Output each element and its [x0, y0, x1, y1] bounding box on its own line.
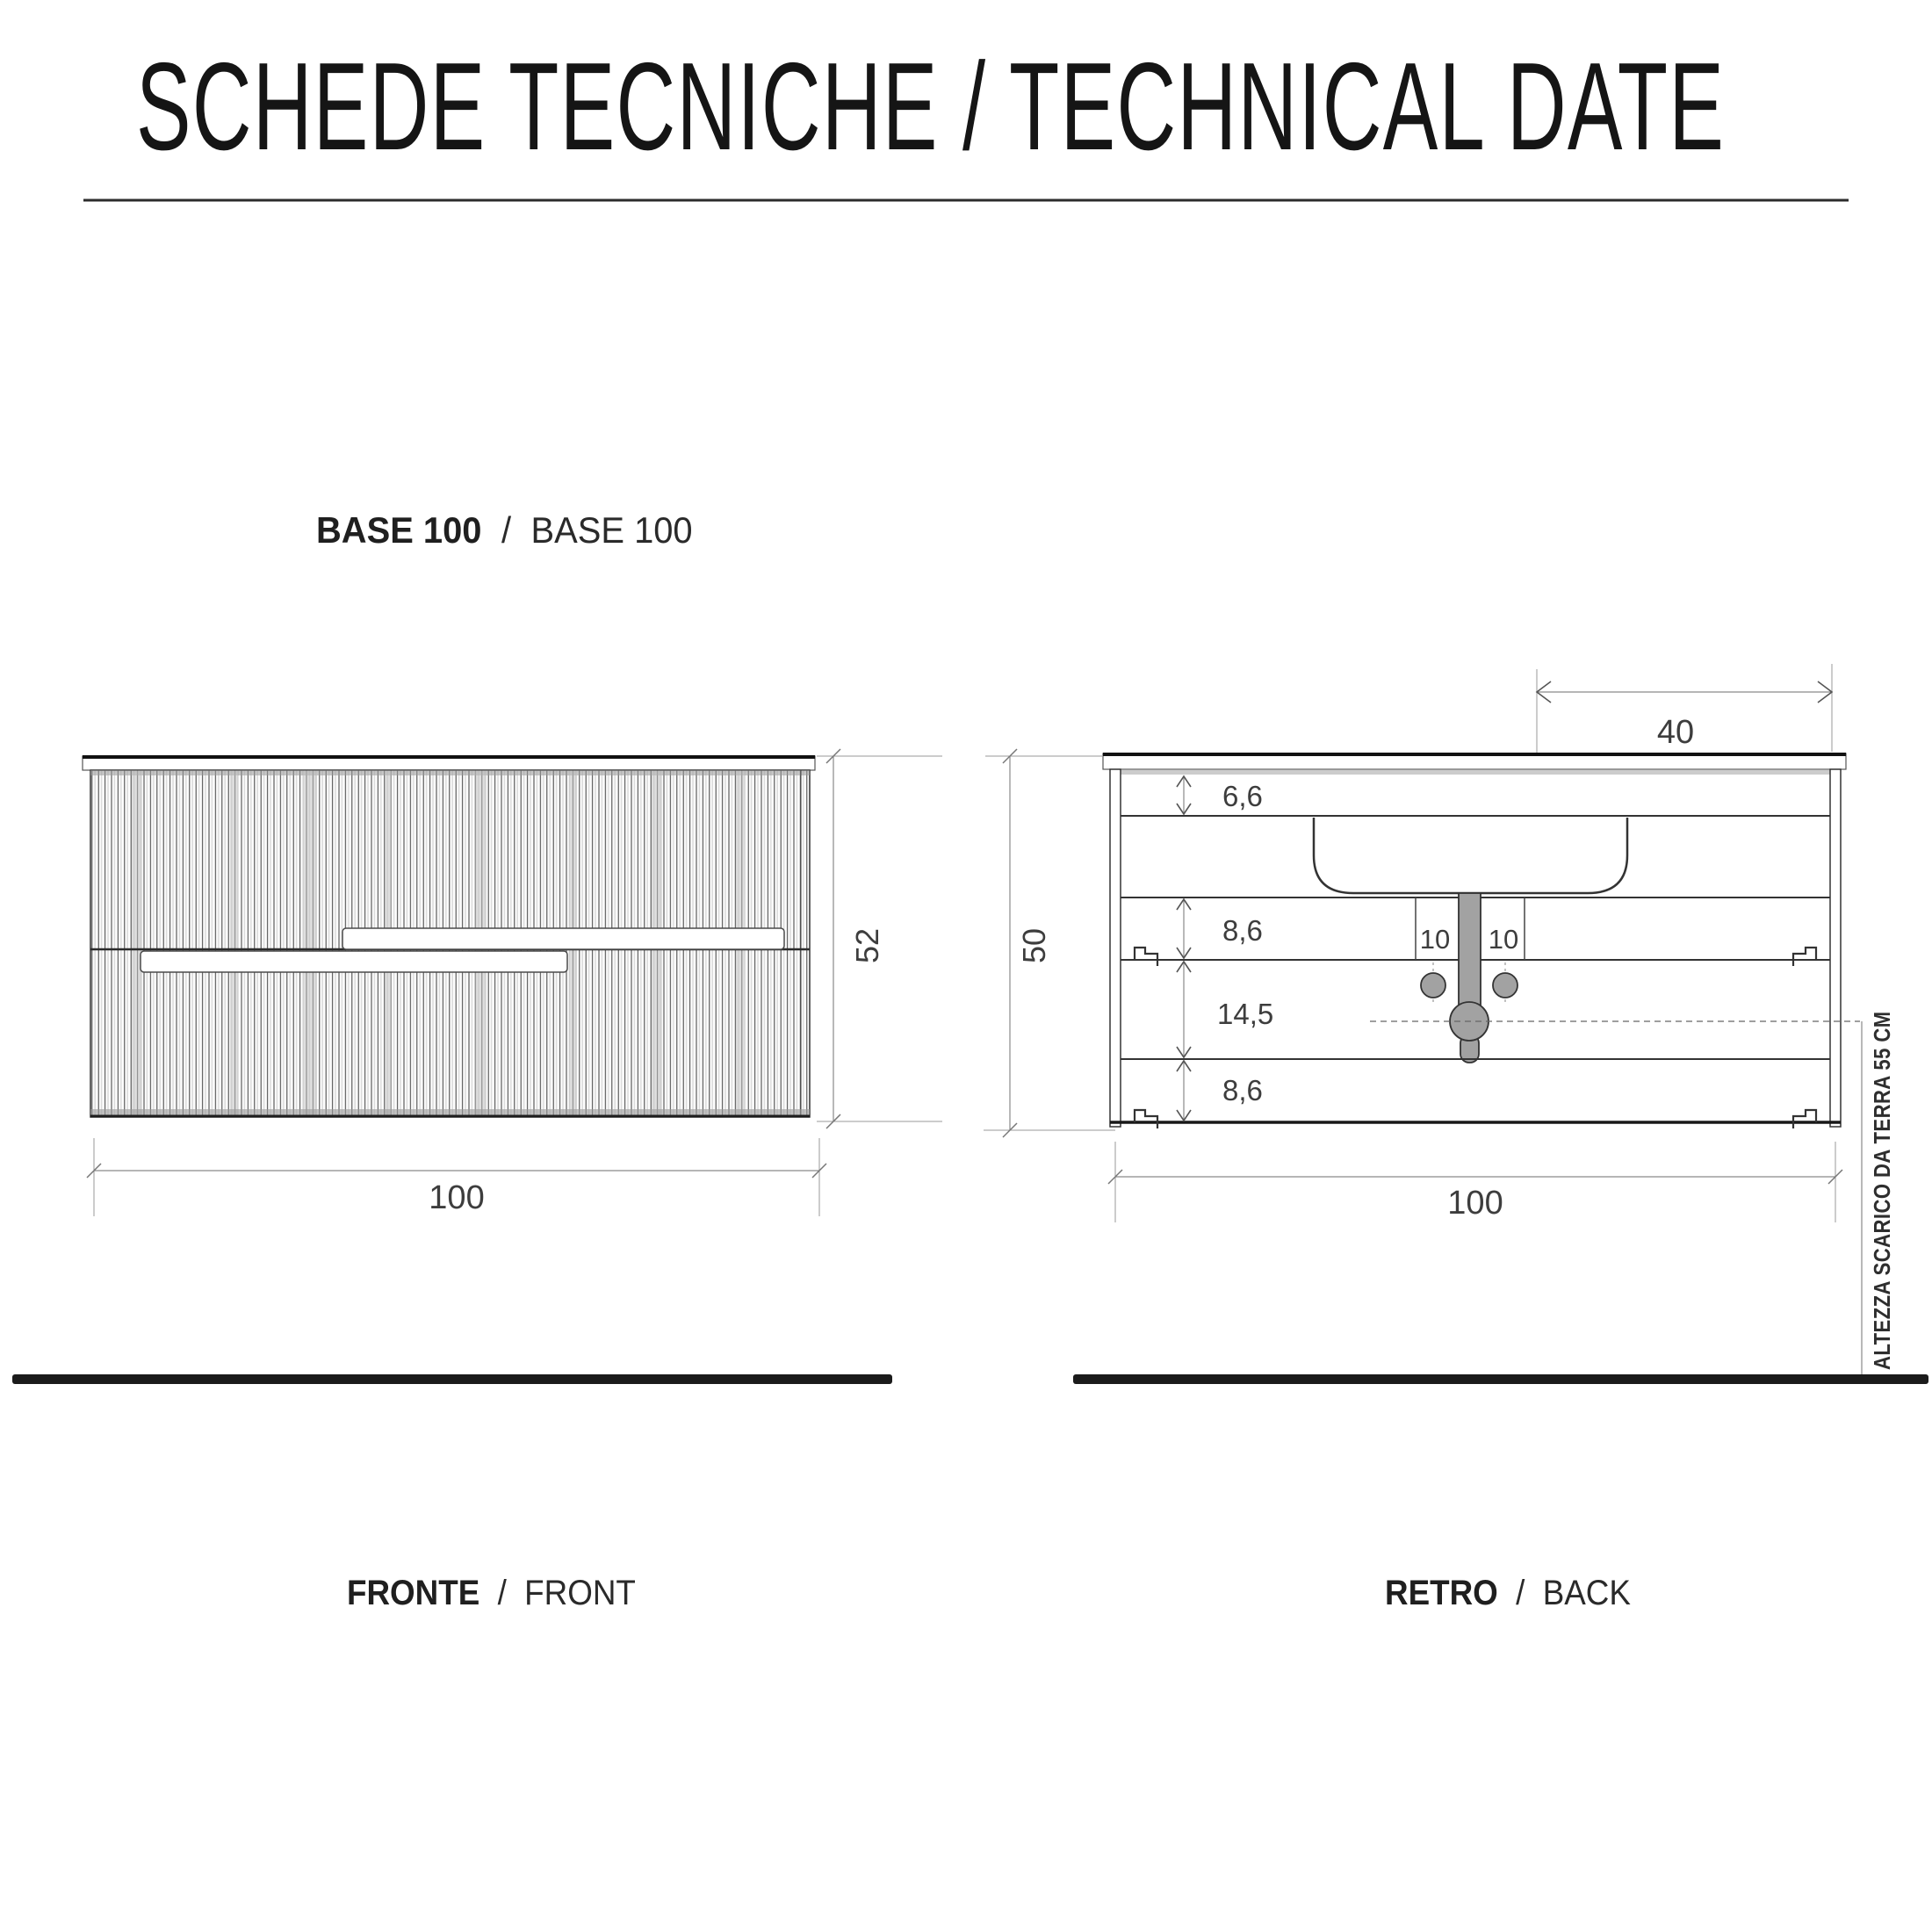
front-height-dimension: 52 — [817, 749, 942, 1128]
back-rail-bottom-label: 8,6 — [1222, 1074, 1263, 1107]
valve-right — [1493, 973, 1517, 998]
page-title: SCHEDE TECNICHE / TECHNICAL DATE — [136, 38, 1725, 177]
back-rail-mid-label: 8,6 — [1222, 914, 1263, 947]
back-height-dimension: 50 — [984, 749, 1115, 1137]
product-name-en: BASE 100 — [531, 509, 693, 551]
product-label-separator: / — [501, 509, 512, 551]
back-width-label: 100 — [1447, 1185, 1503, 1222]
drain-pipe — [1459, 893, 1481, 1007]
back-left-panel — [1110, 769, 1121, 1127]
front-caption-it: FRONTE — [347, 1574, 479, 1613]
product-label: BASE 100 / BASE 100 — [316, 509, 693, 551]
back-rail-mid-dimension: 8,6 — [1177, 899, 1263, 958]
back-right-panel — [1830, 769, 1841, 1127]
back-top-dim-label: 40 — [1657, 714, 1694, 751]
back-height-label: 50 — [1016, 928, 1052, 963]
front-view-drawing: 52 100 FRONTE / FRONT — [12, 749, 942, 1612]
back-rail-top-dimension: 6,6 — [1177, 776, 1263, 814]
front-lower-drawer-handle — [141, 951, 567, 972]
front-view-caption: FRONTE / FRONT — [347, 1574, 636, 1613]
technical-drawing-canvas: SCHEDE TECNICHE / TECHNICAL DATE BASE 10… — [0, 0, 1932, 1932]
back-rail-top-label: 6,6 — [1222, 780, 1263, 812]
back-view-caption: RETRO / BACK — [1385, 1574, 1631, 1613]
back-gap-dimension: 14,5 — [1177, 962, 1273, 1057]
front-caption-en: FRONT — [524, 1574, 636, 1613]
back-floor-line — [1073, 1374, 1928, 1384]
drain-height-note: ALTEZZA SCARICO DA TERRA 55 CM — [1862, 1011, 1895, 1384]
back-caption-en: BACK — [1543, 1574, 1632, 1613]
back-width-dimension: 100 — [1108, 1142, 1842, 1222]
back-gap-label: 14,5 — [1217, 998, 1273, 1030]
front-width-dimension: 100 — [87, 1138, 826, 1216]
technical-sheet-page: SCHEDE TECNICHE / TECHNICAL DATE BASE 10… — [0, 0, 1932, 1932]
back-caption-separator: / — [1516, 1574, 1525, 1613]
drain-height-note-text: ALTEZZA SCARICO DA TERRA 55 CM — [1870, 1011, 1895, 1370]
hole-right-label: 10 — [1489, 924, 1518, 955]
back-sink-basin — [1314, 818, 1627, 893]
front-upper-drawer-handle — [342, 928, 784, 949]
product-name-it: BASE 100 — [316, 509, 481, 551]
back-caption-it: RETRO — [1385, 1574, 1498, 1613]
header: SCHEDE TECNICHE / TECHNICAL DATE — [83, 38, 1849, 200]
back-rail-bottom-dimension: 8,6 — [1177, 1061, 1263, 1121]
front-floor-line — [12, 1374, 892, 1384]
hole-left-label: 10 — [1420, 924, 1450, 955]
front-height-label: 52 — [849, 928, 885, 963]
back-top-dimension: 40 — [1537, 664, 1832, 753]
front-width-label: 100 — [429, 1179, 484, 1216]
back-view-drawing: 40 — [984, 664, 1928, 1612]
front-undercounter-shadow — [90, 770, 810, 775]
valve-left — [1421, 973, 1445, 998]
front-caption-separator: / — [498, 1574, 508, 1613]
back-undercounter-shadow — [1110, 769, 1839, 775]
